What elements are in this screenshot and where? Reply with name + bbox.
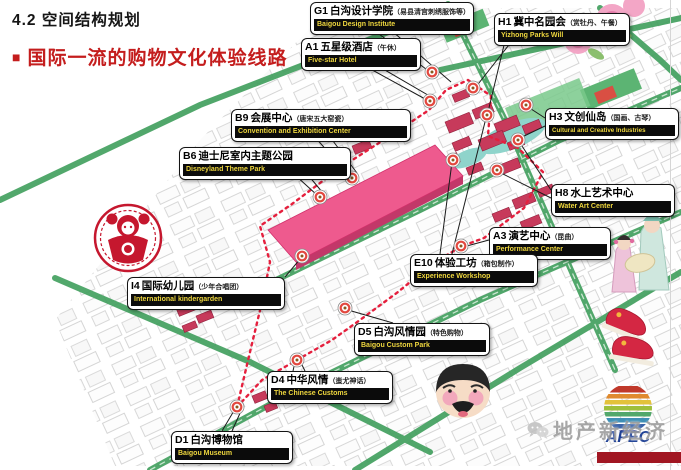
- callout-name-cn: 白沟设计学院: [330, 5, 393, 17]
- callout-code: H1: [498, 16, 511, 28]
- route-marker: [454, 239, 468, 253]
- callout-note: （箱包制作）: [477, 261, 519, 268]
- callout-code: I4: [131, 280, 140, 292]
- callout-name-cn: 体验工坊: [435, 257, 477, 269]
- watermark: 地产新经济: [527, 415, 668, 444]
- callout-note: （易县清宫刺绣服饰等）: [393, 9, 470, 16]
- callout-h1-parks: H1冀中名园会（赏牡丹、午餐） Yizhong Parks Will: [494, 13, 630, 46]
- callout-name-en: Five-star Hotel: [305, 55, 417, 67]
- route-marker: [425, 65, 439, 79]
- route-marker: [295, 249, 309, 263]
- callout-name-en: Water Art Center: [555, 201, 671, 213]
- route-marker: [519, 98, 533, 112]
- callout-b9-convention-center: B9会展中心（唐宋五大窑瓷） Convention and Exhibition…: [231, 109, 411, 142]
- callout-h8-water-art-center: H8水上艺术中心 Water Art Center: [551, 184, 675, 217]
- callout-name-en: Cultural and Creative Industries: [549, 125, 675, 136]
- callout-code: D4: [271, 374, 284, 386]
- callout-note: （少年合唱团）: [194, 284, 243, 291]
- header: 4.2 空间结构规划 ■ 国际一流的购物文化体验线路: [12, 8, 287, 70]
- callout-code: D1: [175, 434, 188, 446]
- callout-note: （赏牡丹、午餐）: [566, 20, 622, 27]
- callout-name-cn: 五星级酒店: [320, 41, 373, 53]
- route-marker: [480, 108, 494, 122]
- callout-name-cn: 水上艺术中心: [570, 187, 633, 199]
- callout-i4-kindergarten: I4国际幼儿园（少年合唱团） International kindergarde…: [127, 277, 285, 310]
- page-subtitle-row: ■ 国际一流的购物文化体验线路: [12, 43, 287, 70]
- callout-name-cn: 白沟博物馆: [190, 434, 243, 446]
- callout-name-en: Experience Workshop: [414, 271, 534, 283]
- callout-e10-experience-workshop: E10体验工坊（箱包制作） Experience Workshop: [410, 254, 538, 287]
- callout-name-cn: 白沟风情园: [373, 326, 426, 338]
- callout-name-en: Baigou Custom Park: [358, 340, 486, 352]
- callout-g1-design-institute: G1白沟设计学院（易县清宫刺绣服饰等） Baigou Design Instit…: [310, 2, 474, 35]
- wechat-icon: [527, 421, 549, 439]
- callout-a1-hotel: A1五星级酒店（午休） Five-star Hotel: [301, 38, 421, 71]
- callout-code: H3: [549, 111, 562, 123]
- callout-name-cn: 会展中心: [250, 112, 292, 124]
- page-title: 4.2 空间结构规划: [12, 8, 287, 30]
- callout-d5-custom-park: D5白沟风情园（特色购物） Baigou Custom Park: [354, 323, 490, 356]
- callout-name-en: Disneyland Theme Park: [183, 164, 347, 176]
- callout-name-en: The Chinese Customs: [271, 388, 389, 400]
- callout-name-cn: 文创仙岛: [564, 111, 606, 123]
- page-subtitle: 国际一流的购物文化体验线路: [27, 43, 287, 70]
- callout-code: B6: [183, 150, 196, 162]
- callout-code: G1: [314, 5, 328, 17]
- callout-code: H8: [555, 187, 568, 199]
- route-marker: [446, 153, 460, 167]
- callout-note: （国画、古琴）: [606, 115, 655, 122]
- callout-code: A3: [493, 230, 506, 242]
- papercut-art-decoration: [95, 205, 161, 271]
- callout-name-en: Convention and Exhibition Center: [235, 126, 407, 138]
- bullet-square-icon: ■: [12, 50, 20, 64]
- callout-note: （唐宋五大窑瓷）: [292, 116, 348, 123]
- callout-note: （特色购物）: [426, 330, 468, 337]
- callout-code: A1: [305, 41, 318, 53]
- callout-name-cn: 迪士尼室内主题公园: [198, 150, 293, 162]
- route-marker: [490, 163, 504, 177]
- callout-note: （昆曲）: [550, 234, 578, 241]
- bottom-red-bar: [597, 452, 681, 463]
- callout-note: （午休）: [373, 45, 401, 52]
- callout-name-en: International kindergarden: [131, 294, 281, 306]
- callout-name-en: Baigou Design Institute: [314, 19, 470, 31]
- callout-code: E10: [414, 257, 433, 269]
- callout-h3-creative-industries: H3文创仙岛（国画、古琴） Cultural and Creative Indu…: [545, 108, 679, 140]
- route-marker: [466, 81, 480, 95]
- callout-name-en: Yizhong Parks Will: [498, 30, 626, 42]
- slide: APEC 4.2 空间结构规划 ■ 国际一流的购物文化体验线路 G1白沟设计学院…: [0, 0, 681, 470]
- opera-mask-decoration: [436, 364, 490, 418]
- callout-b6-disneyland: B6迪士尼室内主题公园 Disneyland Theme Park: [179, 147, 351, 180]
- callout-name-cn: 中华风情: [286, 374, 328, 386]
- callout-code: B9: [235, 112, 248, 124]
- slide-right-edge-line: [670, 0, 671, 470]
- route-marker: [230, 400, 244, 414]
- callout-name-cn: 冀中名园会: [513, 16, 566, 28]
- route-marker: [338, 301, 352, 315]
- callout-d1-museum: D1白沟博物馆 Baigou Museum: [171, 431, 293, 464]
- callout-d4-chinese-customs: D4中华风情（蚩尤神话） The Chinese Customs: [267, 371, 393, 404]
- watermark-text: 地产新经济: [553, 415, 668, 444]
- callout-code: D5: [358, 326, 371, 338]
- callout-note: （蚩尤神话）: [328, 378, 370, 385]
- callout-name-cn: 演艺中心: [508, 230, 550, 242]
- callout-name-cn: 国际幼儿园: [142, 280, 195, 292]
- route-marker: [290, 353, 304, 367]
- callout-name-en: Baigou Museum: [175, 448, 289, 460]
- route-marker: [423, 94, 437, 108]
- route-marker: [511, 133, 525, 147]
- route-marker: [313, 190, 327, 204]
